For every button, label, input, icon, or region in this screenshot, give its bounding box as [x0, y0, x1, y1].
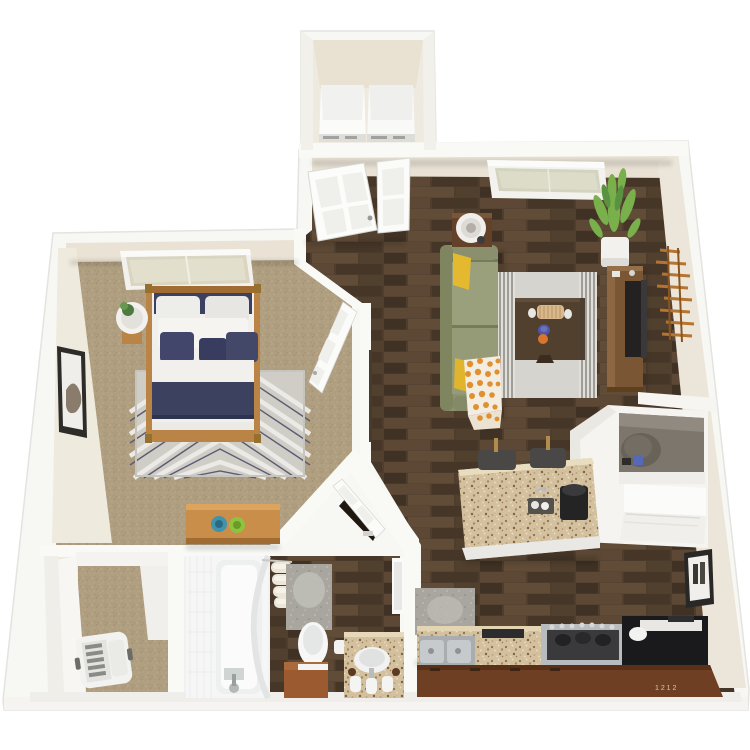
svg-text:1 2 1 2: 1 2 1 2 — [655, 685, 677, 692]
